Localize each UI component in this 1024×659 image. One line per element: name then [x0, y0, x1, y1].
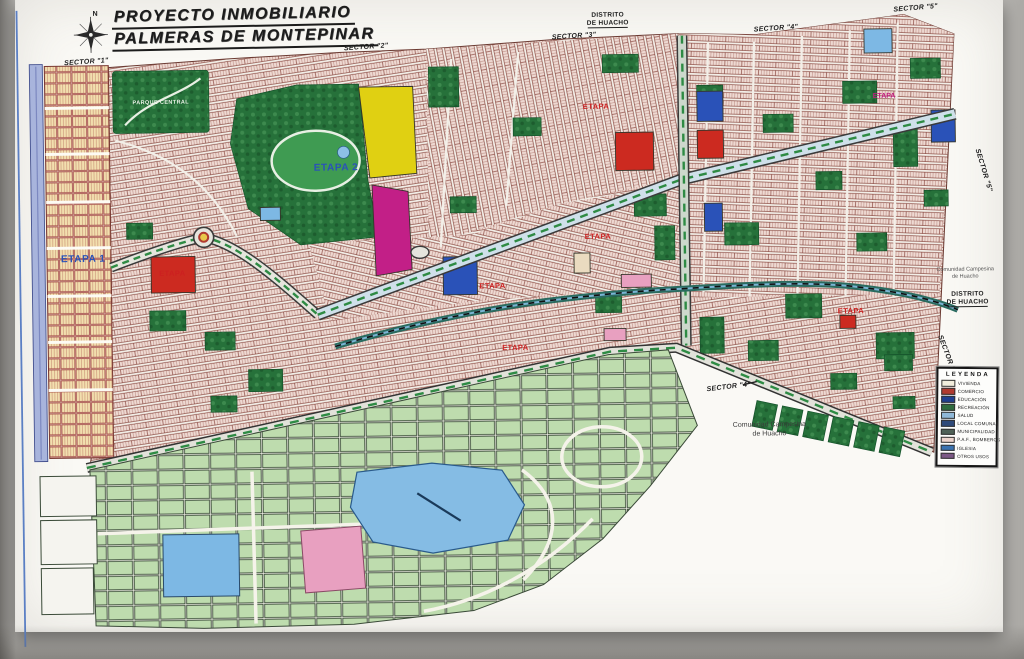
district-top-underline — [588, 27, 628, 28]
etapa-label-magenta-1: ETAPA — [873, 93, 896, 100]
legend-label: MUNICIPALIDAD — [957, 429, 995, 434]
comercio-parcel — [697, 130, 723, 158]
legend-label: VIVIENDA — [958, 381, 981, 386]
park-parcel — [748, 340, 778, 360]
park-parcel — [843, 81, 877, 103]
vacant-parcel — [41, 520, 98, 565]
park-parcel — [249, 369, 283, 391]
legend-swatch — [941, 404, 955, 411]
etapa-label-red-6: ETAPA — [838, 306, 865, 315]
site-plan-map: N DISTRITO DE HUACHO DISTRITO DE HUACHO … — [0, 0, 1024, 659]
park-parcel — [816, 171, 842, 189]
legend-swatch — [941, 396, 955, 403]
legend-item: EDUCACIÓN — [941, 396, 994, 403]
park-parcel — [831, 373, 857, 389]
legend: LEYENDA VIVIENDACOMERCIOEDUCACIÓNRECREAC… — [935, 367, 998, 468]
vacant-parcel — [40, 476, 97, 517]
oval-roundabout — [411, 246, 429, 258]
legend-label: IGLESIA — [957, 445, 976, 450]
bomberos-parcel — [621, 274, 651, 287]
park-parcel — [211, 396, 237, 412]
park-parcel — [725, 223, 759, 245]
park-parcel — [513, 118, 541, 136]
etapa-label-blue-1: ETAPA 1 — [61, 254, 106, 266]
park-parcel — [655, 226, 675, 260]
legend-label: OTROS USOS — [957, 453, 989, 458]
comercio-parcel — [615, 132, 654, 171]
legend-item: VIVIENDA — [941, 380, 994, 387]
local-comunal-parcel — [574, 253, 590, 273]
park-parcel — [450, 196, 476, 212]
sector-label-5: SECTOR "5" — [893, 3, 938, 14]
park-parcel — [924, 190, 948, 206]
legend-items: VIVIENDACOMERCIOEDUCACIÓNRECREACIÓNSALUD… — [941, 380, 995, 460]
park-parcel — [126, 223, 152, 239]
sector-label-4-bottom: SECTOR "4" — [706, 381, 751, 393]
park-parcel — [828, 416, 854, 446]
park-parcel — [884, 354, 912, 370]
salud-parcel — [260, 207, 280, 220]
iglesia-parcel — [704, 203, 722, 231]
parque-central-label: PARQUE CENTRAL — [132, 99, 189, 106]
legend-label: LOCAL COMUNAL — [957, 421, 998, 426]
park-parcel — [700, 317, 725, 353]
legend-swatch — [941, 420, 955, 427]
park-parcel — [596, 296, 622, 312]
sheet-margin-line — [16, 11, 25, 647]
etapa-label-red-2: ETAPA — [479, 281, 506, 290]
etapa-label-red-5: ETAPA — [502, 343, 529, 352]
park-parcel — [910, 58, 940, 78]
vacant-parcel — [41, 568, 94, 615]
compass-north-label: N — [93, 11, 98, 18]
lagoon-loop-road — [271, 130, 360, 191]
district-top-line2: DE HUACHO — [587, 19, 629, 27]
park-parcel — [803, 411, 829, 441]
legend-item: COMERCIO — [941, 388, 994, 395]
legend-swatch — [941, 428, 955, 435]
bomberos-parcel — [604, 328, 626, 340]
legend-label: P.A.F., BOMBEROS — [957, 437, 1000, 442]
legend-label: RECREACIÓN — [958, 405, 990, 410]
park-parcel — [786, 294, 822, 319]
legend-item: RECREACIÓN — [941, 404, 994, 411]
sector-label-5-rotated: SECTOR "5" — [974, 148, 994, 193]
district-right-underline — [948, 306, 988, 307]
legend-label: COMERCIO — [958, 389, 984, 394]
legend-title: LEYENDA — [941, 372, 994, 379]
park-parcel — [893, 128, 918, 166]
legend-label: SALUD — [957, 413, 973, 418]
legend-swatch — [941, 453, 955, 460]
etapa-label-red-4: ETAPA — [585, 232, 612, 241]
park-parcel — [893, 396, 915, 408]
district-right-line1: DISTRITO — [951, 290, 984, 297]
etapa-label-blue-2: ETAPA 2 — [314, 162, 359, 174]
park-parcel — [763, 114, 793, 132]
etapa-label-red-1: ETAPA — [159, 269, 186, 278]
salud-parcel — [864, 29, 892, 53]
park-parcel — [428, 67, 459, 107]
compass-rose-icon: N — [74, 11, 109, 53]
comunidad-bottom-line2: de Huacho — [752, 430, 786, 437]
district-top-line1: DISTRITO — [591, 11, 624, 18]
comunidad-right-line1: Comunidad Campesina — [936, 266, 994, 273]
park-parcel — [602, 54, 638, 73]
legend-swatch — [941, 444, 955, 451]
legend-swatch — [941, 388, 955, 395]
legend-item: P.A.F., BOMBEROS — [941, 436, 994, 443]
lagoon — [350, 462, 525, 554]
park-parcel — [857, 233, 887, 251]
comunidad-bottom-line1: Comunidad Campesina — [733, 421, 806, 429]
park-parcel — [205, 332, 235, 350]
legend-item: OTROS USOS — [941, 453, 994, 460]
park-parcel — [150, 311, 186, 332]
comercio-parcel — [840, 315, 856, 328]
legend-label: EDUCACIÓN — [958, 397, 987, 402]
roundabout-center — [199, 233, 208, 242]
legend-swatch — [941, 412, 955, 419]
legend-item: LOCAL COMUNAL — [941, 420, 994, 427]
map-title: PROYECTO INMOBILIARIO PALMERAS DE MONTEP… — [112, 3, 379, 52]
otros-usos-parcel-magenta — [372, 184, 412, 276]
farm-pink-parcel — [301, 526, 366, 593]
etapa-label-red-3: ETAPA — [583, 102, 610, 111]
legend-item: SALUD — [941, 412, 994, 419]
legend-swatch — [941, 380, 955, 387]
farm-blue-parcel — [163, 534, 240, 597]
district-right-line2: DE HUACHO — [947, 298, 989, 306]
legend-swatch — [941, 436, 955, 443]
comunidad-right-line2: de Huacho — [952, 273, 979, 279]
legend-item: IGLESIA — [941, 444, 994, 451]
park-pond — [337, 146, 349, 158]
educacion-parcel — [697, 91, 723, 121]
legend-item: MUNICIPALIDAD — [941, 428, 994, 435]
